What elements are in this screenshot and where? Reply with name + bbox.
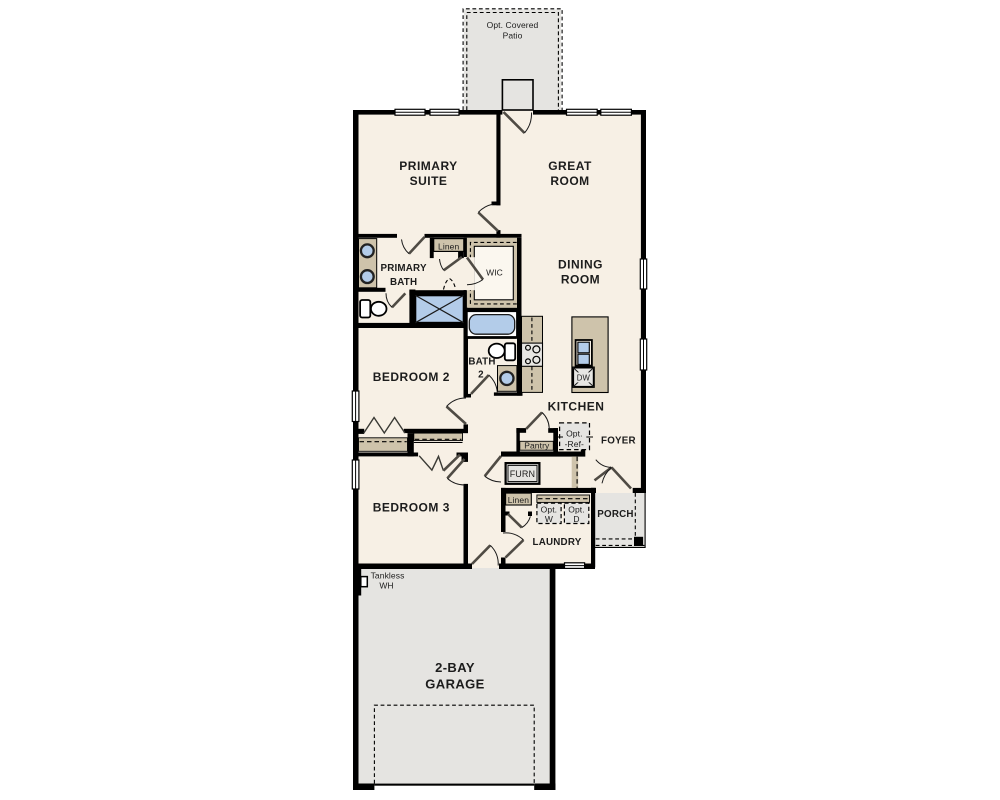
svg-text:W: W xyxy=(545,514,553,524)
svg-text:Tankless: Tankless xyxy=(371,571,405,581)
svg-text:D: D xyxy=(573,514,579,524)
svg-text:BATH: BATH xyxy=(468,357,495,368)
svg-text:-Ref-: -Ref- xyxy=(565,439,584,449)
svg-text:FOYER: FOYER xyxy=(601,436,636,447)
svg-text:Pantry: Pantry xyxy=(524,440,550,450)
svg-text:SUITE: SUITE xyxy=(410,174,448,188)
svg-text:FURN: FURN xyxy=(510,469,535,479)
svg-text:LAUNDRY: LAUNDRY xyxy=(533,537,582,548)
svg-text:2: 2 xyxy=(478,370,484,381)
svg-text:DINING: DINING xyxy=(558,258,603,272)
svg-text:BEDROOM 2: BEDROOM 2 xyxy=(373,370,450,384)
svg-text:KITCHEN: KITCHEN xyxy=(548,400,605,414)
svg-text:PORCH: PORCH xyxy=(597,509,633,520)
svg-text:PRIMARY: PRIMARY xyxy=(399,159,457,173)
svg-text:BATH: BATH xyxy=(390,277,417,288)
svg-text:Opt. Covered: Opt. Covered xyxy=(487,20,539,30)
svg-text:PRIMARY: PRIMARY xyxy=(380,263,426,274)
svg-text:2-BAY: 2-BAY xyxy=(435,660,475,675)
svg-text:Opt.: Opt. xyxy=(566,428,582,438)
svg-text:GARAGE: GARAGE xyxy=(425,677,484,692)
svg-text:DW: DW xyxy=(577,374,591,383)
svg-text:Patio: Patio xyxy=(503,31,523,41)
svg-text:ROOM: ROOM xyxy=(550,174,589,188)
svg-text:ROOM: ROOM xyxy=(561,273,600,287)
svg-text:WIC: WIC xyxy=(486,268,503,278)
svg-text:GREAT: GREAT xyxy=(548,159,592,173)
svg-text:Linen: Linen xyxy=(438,241,459,251)
svg-text:Linen: Linen xyxy=(508,495,529,505)
svg-text:BEDROOM 3: BEDROOM 3 xyxy=(373,501,450,515)
svg-text:WH: WH xyxy=(379,580,393,590)
